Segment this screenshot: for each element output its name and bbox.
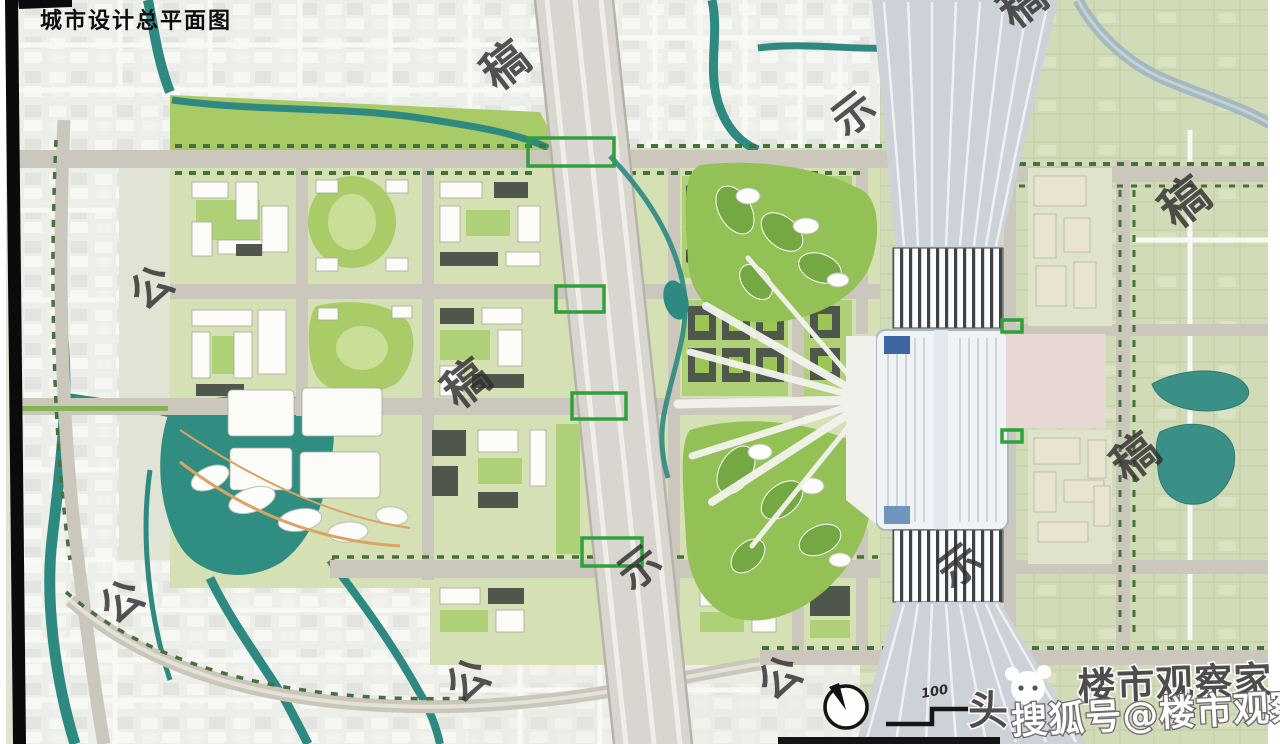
brand-back-left: 头 — [968, 688, 1008, 734]
urban-plan-map: 稿示稿稿公稿稿示示公公公 100 城市设计总平面图 头 楼市观察家 搜狐号@楼市… — [0, 0, 1280, 744]
map-canvas: 稿示稿稿公稿稿示示公公公 100 城市设计总平面图 头 楼市观察家 搜狐号@楼市… — [0, 0, 1280, 744]
station-west-plaza — [846, 336, 876, 524]
station-glass-blue — [884, 336, 910, 354]
platforms-north — [893, 248, 1003, 328]
frame-bottom-bar — [778, 737, 1000, 744]
arterial-north — [19, 150, 1002, 168]
station-east-plaza — [1006, 334, 1106, 428]
north-arrow — [825, 683, 867, 728]
page-title: 城市设计总平面图 — [40, 8, 232, 34]
frame-right-strip — [1268, 0, 1280, 744]
